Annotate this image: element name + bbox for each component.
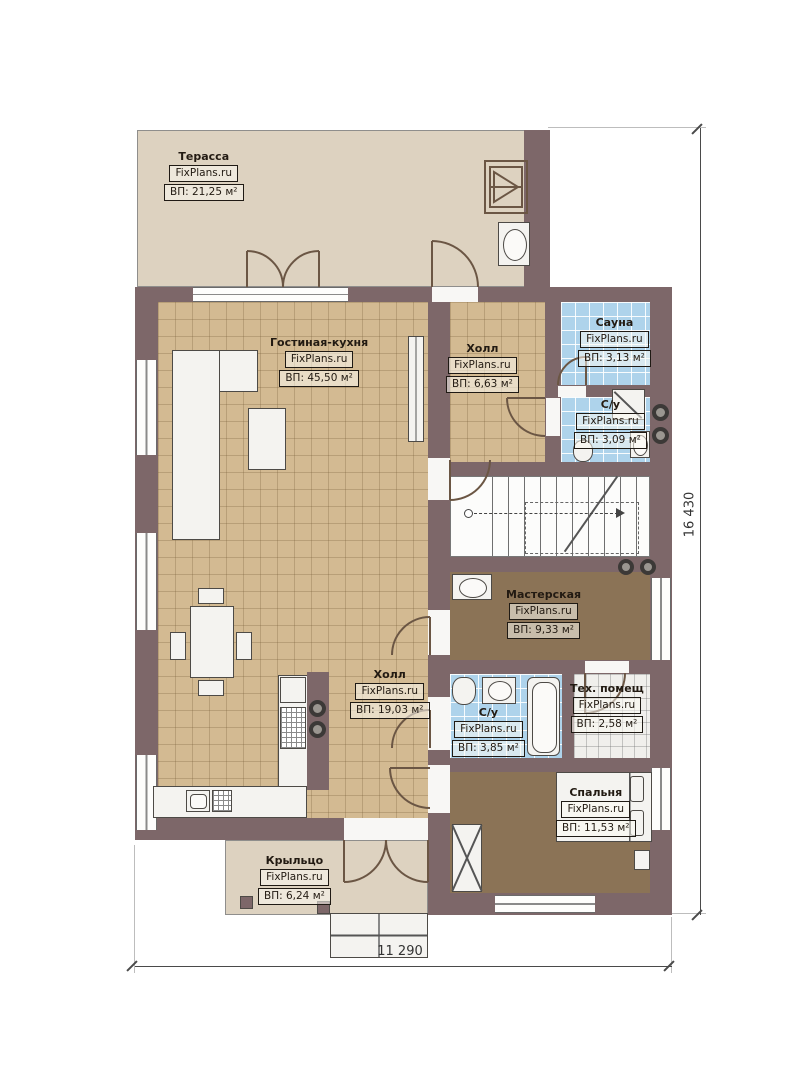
window-workshop — [651, 578, 671, 660]
room-label-tech: Тех. помещ FixPlans.ru ВП: 2,58 м² — [570, 682, 644, 733]
door-arc-terrace-double-left — [247, 251, 283, 287]
window-bedroom-right — [651, 768, 671, 830]
door-arc-entrance-left — [344, 840, 386, 882]
window-living-terrace — [193, 287, 348, 302]
room-name: Спальня — [569, 786, 622, 799]
room-name: Холл — [466, 342, 498, 355]
stove-burner-1 — [309, 700, 326, 717]
fridge — [280, 677, 306, 703]
chair-left — [170, 632, 186, 660]
room-label-workshop: Мастерская FixPlans.ru ВП: 9,33 м² — [506, 588, 581, 639]
room-area: ВП: 6,24 м² — [258, 888, 331, 905]
vent-workshop-2 — [640, 559, 656, 575]
dimension-height-label: 16 430 — [683, 485, 698, 545]
room-label-hall-small: Холл FixPlans.ru ВП: 6,63 м² — [446, 342, 519, 393]
room-label-porch: Крыльцо FixPlans.ru ВП: 6,24 м² — [258, 854, 331, 905]
room-area: ВП: 3,09 м² — [574, 432, 647, 449]
room-label-bedroom: Спальня FixPlans.ru ВП: 11,53 м² — [556, 786, 636, 837]
opening-bathroom-top — [546, 398, 560, 436]
watermark: FixPlans.ru — [169, 165, 238, 182]
room-label-living-kitchen: Гостиная-кухня FixPlans.ru ВП: 45,50 м² — [270, 336, 368, 387]
door-arc-bedroom — [390, 768, 430, 808]
room-name: Терасса — [178, 150, 229, 163]
wall-stairs-bottom — [428, 557, 672, 572]
opening-bedroom — [428, 765, 450, 813]
extension-line-bottom-left — [134, 845, 135, 973]
bathtub — [527, 677, 560, 756]
chair-right — [236, 632, 252, 660]
vent-workshop-1 — [618, 559, 634, 575]
kitchen-sink — [186, 790, 210, 812]
watermark: FixPlans.ru — [561, 801, 630, 818]
room-name: С/у — [479, 706, 498, 719]
opening-bathroom-bottom — [428, 697, 450, 750]
grill-icon — [484, 160, 528, 214]
room-area: ВП: 11,53 м² — [556, 820, 636, 837]
chair-bottom — [198, 680, 224, 696]
dimension-width-label: 11 290 — [360, 944, 440, 959]
vent-bath-2 — [652, 427, 669, 444]
dimension-line-bottom — [135, 966, 672, 967]
watermark: FixPlans.ru — [355, 683, 424, 700]
room-area: ВП: 21,25 м² — [164, 184, 244, 201]
vent-bath-1 — [652, 404, 669, 421]
room-name: Холл — [374, 668, 406, 681]
room-label-sauna: Сауна FixPlans.ru ВП: 3,13 м² — [578, 316, 651, 367]
opening-terrace-door — [432, 287, 478, 302]
wall-bottom-left — [135, 818, 344, 840]
room-label-terrace: Терасса FixPlans.ru ВП: 21,25 м² — [164, 150, 244, 201]
watermark: FixPlans.ru — [576, 413, 645, 430]
sink-bottom — [482, 677, 516, 704]
oven-stack — [280, 707, 306, 749]
wall-center-2 — [428, 500, 450, 610]
door-arc-terrace-single — [432, 241, 478, 287]
dining-table — [190, 606, 234, 678]
room-area: ВП: 19,03 м² — [350, 702, 430, 719]
wall-center-5 — [428, 813, 450, 893]
toilet-bottom — [452, 677, 476, 705]
dimension-line-right — [700, 128, 701, 915]
opening-tech — [585, 661, 629, 673]
watermark: FixPlans.ru — [260, 869, 329, 886]
stair-walk-line — [474, 513, 618, 514]
opening-workshop — [428, 610, 450, 655]
stair-arrow-icon — [616, 508, 625, 518]
room-name: Крыльцо — [266, 854, 324, 867]
kitchen-drainboard — [212, 790, 232, 812]
room-area: ВП: 6,63 м² — [446, 376, 519, 393]
room-area: ВП: 3,13 м² — [578, 350, 651, 367]
tv-panel — [408, 336, 424, 442]
window-left-1 — [136, 360, 157, 455]
wall-workshop-bottom — [428, 660, 672, 674]
door-arc-workshop — [392, 617, 430, 655]
door-arc-bathroom-top — [507, 398, 545, 436]
stair-walk-start — [464, 509, 473, 518]
watermark: FixPlans.ru — [285, 351, 354, 368]
opening-stair-hall — [428, 458, 450, 500]
extension-line-top — [548, 127, 706, 128]
room-name: Гостиная-кухня — [270, 336, 368, 349]
room-area: ВП: 3,85 м² — [452, 740, 525, 757]
window-bedroom-bottom — [495, 895, 595, 913]
room-name: Тех. помещ — [570, 682, 644, 695]
room-name: Мастерская — [506, 588, 581, 601]
room-area: ВП: 9,33 м² — [507, 622, 580, 639]
room-label-bathroom-top: С/у FixPlans.ru ВП: 3,09 м² — [574, 398, 647, 449]
watermark: FixPlans.ru — [448, 357, 517, 374]
porch-post-1 — [240, 896, 253, 909]
room-name: С/у — [601, 398, 620, 411]
watermark: FixPlans.ru — [509, 603, 578, 620]
room-label-bathroom-bottom: С/у FixPlans.ru ВП: 3,85 м² — [452, 706, 525, 757]
watermark: FixPlans.ru — [580, 331, 649, 348]
watermark: FixPlans.ru — [454, 721, 523, 738]
opening-sauna — [558, 386, 586, 397]
sofa-vertical — [172, 350, 220, 540]
stove-burner-2 — [309, 721, 326, 738]
terrace-sink — [498, 222, 530, 266]
wall-bedroom-top — [428, 758, 672, 772]
chair-top — [198, 588, 224, 604]
wardrobe — [452, 824, 482, 892]
nightstand — [634, 850, 650, 870]
dimension-tick — [691, 909, 702, 920]
door-arc-entrance-right — [386, 840, 428, 882]
window-left-2 — [136, 533, 157, 630]
door-arc-terrace-double-right — [283, 251, 319, 287]
opening-entrance — [344, 818, 428, 840]
room-area: ВП: 2,58 м² — [571, 716, 644, 733]
watermark: FixPlans.ru — [573, 697, 642, 714]
room-label-hall-big: Холл FixPlans.ru ВП: 19,03 м² — [350, 668, 430, 719]
workshop-sink — [452, 574, 492, 600]
floor-plan: Терасса FixPlans.ru ВП: 21,25 м² Гостина… — [0, 0, 792, 1080]
door-arc-stair-hall — [450, 460, 490, 500]
room-area: ВП: 45,50 м² — [279, 370, 359, 387]
room-name: Сауна — [596, 316, 634, 329]
coffee-table — [248, 408, 286, 470]
